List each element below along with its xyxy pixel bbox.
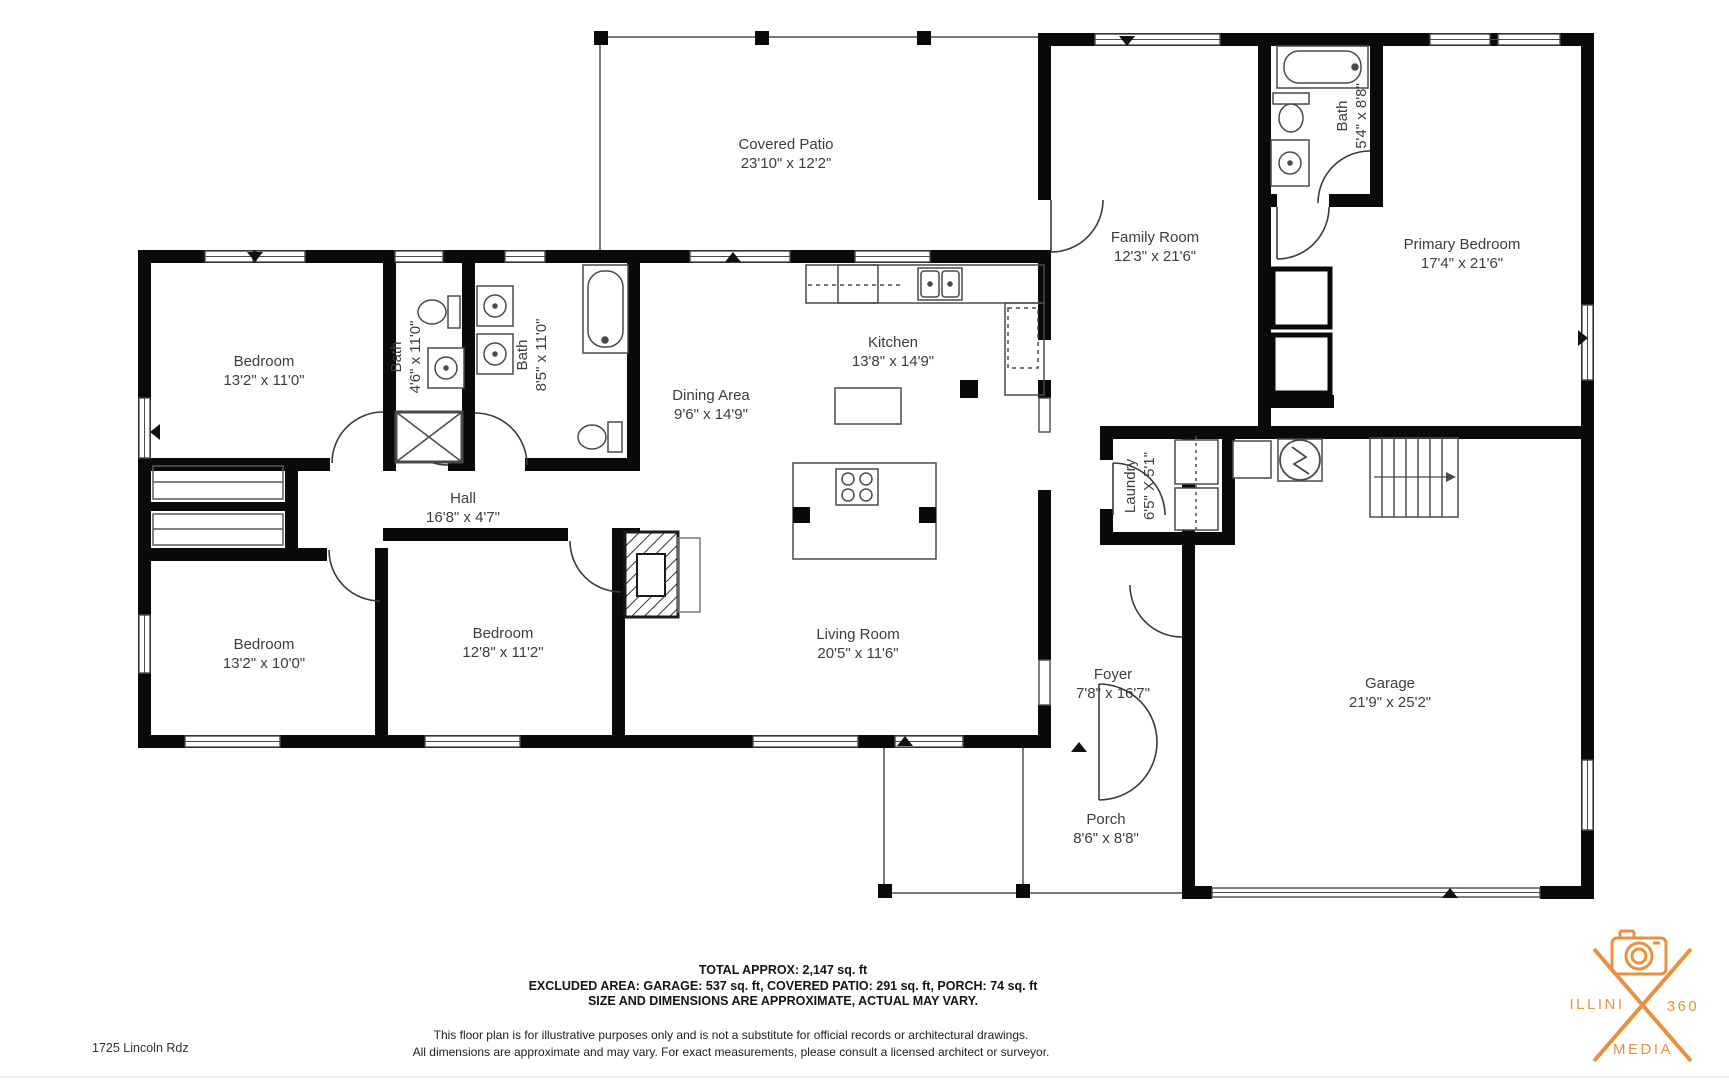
disclaimer-line-2: All dimensions are approximate and may v… [331, 1044, 1131, 1061]
porch-outline [884, 748, 1182, 893]
toilet-icon [418, 296, 460, 328]
logo-text-bottom: MEDIA [1613, 1041, 1673, 1058]
stairs-icon [1370, 438, 1458, 517]
washer-dryer-icons [1175, 436, 1218, 534]
total-approx-line: TOTAL APPROX: 2,147 sq. ft [383, 963, 1183, 979]
area-summary: TOTAL APPROX: 2,147 sq. ft EXCLUDED AREA… [383, 963, 1183, 1010]
hall-bath1-fixtures [396, 296, 464, 462]
water-heater-icon [1278, 439, 1322, 481]
cooktop-icon [836, 469, 878, 505]
logo-text-right: 360 [1667, 998, 1700, 1015]
sink-icon [477, 334, 513, 374]
camera-icon [1612, 931, 1666, 974]
sink-icon [1271, 140, 1309, 186]
shower-icon [396, 412, 462, 462]
sink-icon [428, 348, 464, 388]
toilet-icon [1273, 93, 1309, 132]
porch-posts [878, 884, 1030, 898]
kitchen-island [793, 388, 936, 559]
property-address: 1725 Lincoln Rdz [92, 1041, 189, 1055]
toilet-icon [578, 422, 622, 452]
sink-icon [477, 286, 513, 326]
floor-plan: ILLINI 360 MEDIA [0, 0, 1729, 1080]
floor-plan-page: ILLINI 360 MEDIA Covered Patio 23'10" x … [0, 0, 1729, 1080]
primary-closets [1273, 269, 1330, 393]
disclaimer: This floor plan is for illustrative purp… [331, 1027, 1131, 1061]
fireplace-icon [625, 532, 700, 617]
bathtub-icon [1277, 46, 1368, 88]
disclaimer-line-1: This floor plan is for illustrative purp… [331, 1027, 1131, 1044]
primary-bath-fixtures [1271, 46, 1368, 186]
hall-bath2-fixtures [477, 265, 628, 452]
kitchen-sink-icon [918, 268, 962, 300]
size-note-line: SIZE AND DIMENSIONS ARE APPROXIMATE, ACT… [383, 994, 1183, 1010]
walls [138, 33, 1594, 899]
covered-patio-outline [600, 37, 1040, 250]
logo-text-left: ILLINI [1569, 996, 1624, 1013]
bathtub-icon [583, 265, 628, 353]
furnace-icon [1233, 441, 1271, 478]
illini360-logo: ILLINI 360 MEDIA [1569, 931, 1699, 1061]
excluded-area-line: EXCLUDED AREA: GARAGE: 537 sq. ft, COVER… [383, 979, 1183, 995]
bottom-divider [0, 1076, 1729, 1078]
